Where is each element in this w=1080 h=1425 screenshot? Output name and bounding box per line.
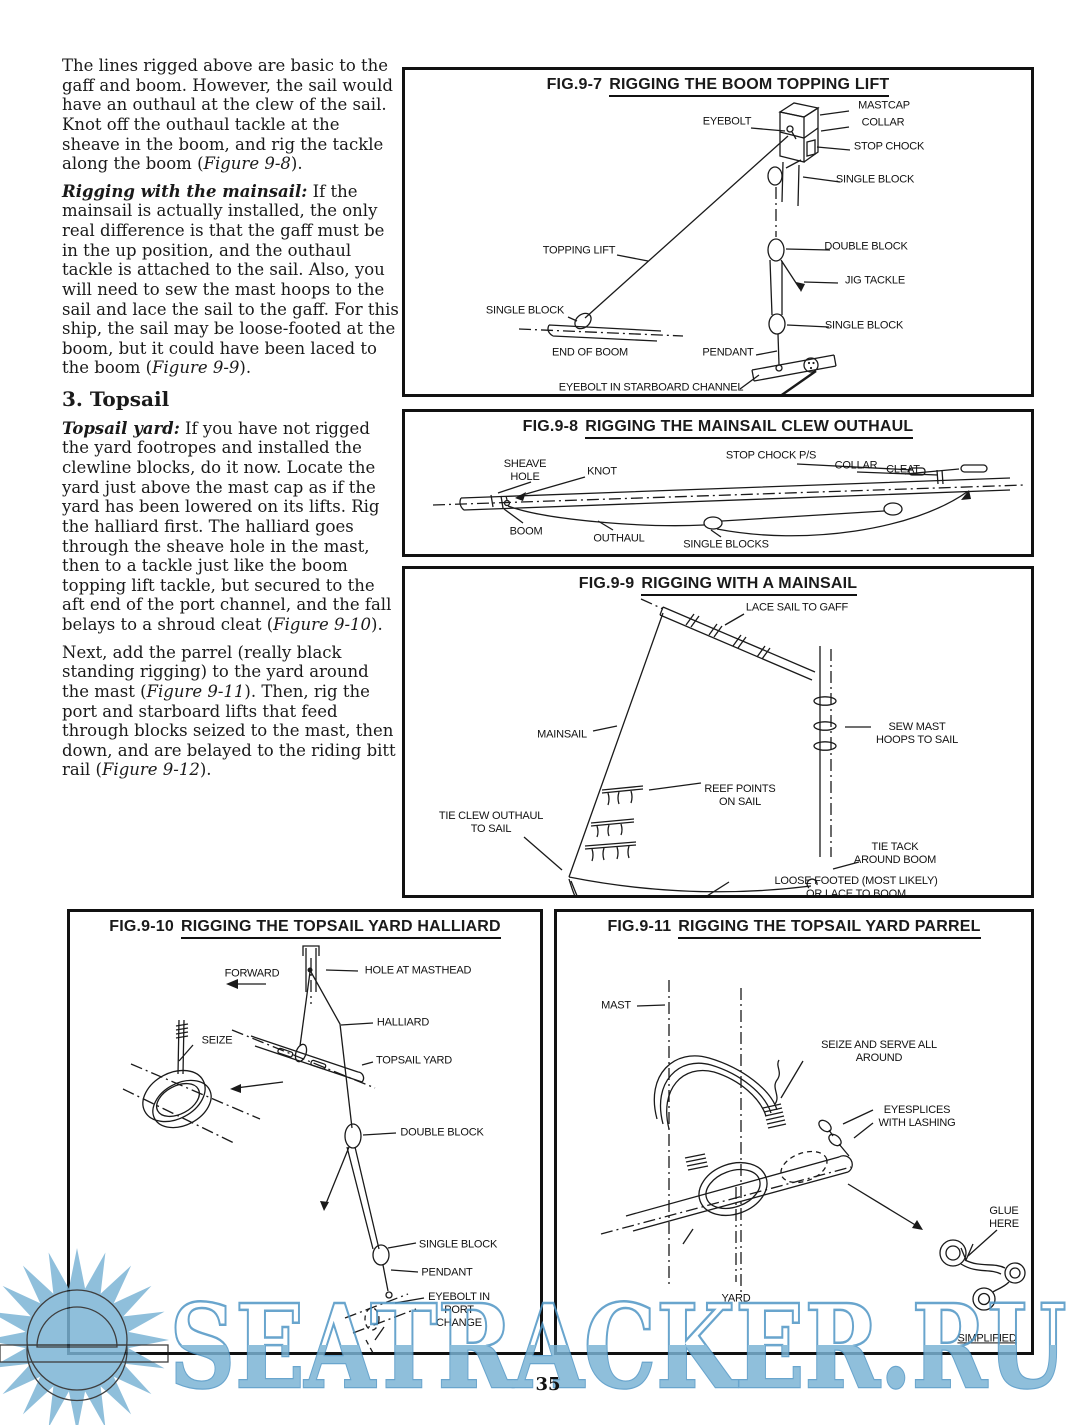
figure-9-11: FIG.9-11RIGGING THE TOPSAIL YARD PARREL	[554, 909, 1034, 1355]
figure-9-9: FIG.9-9RIGGING WITH A MAINSAIL	[402, 566, 1034, 898]
label-jig-tackle: JIG TACKLE	[845, 274, 905, 287]
paragraph-text: If you have not rigged the yard footrope…	[62, 419, 391, 634]
label-end-of-boom: END OF BOOM	[552, 346, 628, 359]
label-halliard: HALLIARD	[377, 1016, 429, 1029]
label-eyebolt-starboard-channel: EYEBOLT IN STARBOARD CHANNEL	[559, 381, 744, 394]
paragraph-lead: Topsail yard:	[62, 419, 180, 438]
label-outhaul: OUTHAUL	[593, 532, 644, 545]
paragraph: The lines rigged above are basic to the …	[62, 56, 400, 174]
label-single-blocks: SINGLE BLOCKS	[683, 538, 768, 551]
paragraph-text: ).	[239, 358, 251, 377]
label-pendant: PENDANT	[702, 346, 753, 359]
page-number: 35	[533, 1374, 563, 1395]
label-topsail-yard: TOPSAIL YARD	[376, 1054, 452, 1067]
label-eyesplices: EYESPLICES WITH LASHING	[878, 1104, 955, 1130]
label-sheave-hole: SHEAVE HOLE	[504, 458, 547, 484]
figure-9-8: FIG.9-8RIGGING THE MAINSAIL CLEW OUTHAUL	[402, 409, 1034, 557]
label-forward: FORWARD	[225, 967, 280, 980]
figure-9-7: FIG.9-7RIGGING THE BOOM TOPPING LIFT	[402, 67, 1034, 397]
label-loose-footed: LOOSE FOOTED (MOST LIKELY) OR LACE TO BO…	[769, 875, 944, 901]
label-single-block: SINGLE BLOCK	[825, 319, 903, 332]
label-single-block: SINGLE BLOCK	[836, 173, 914, 186]
label-collar: COLLAR	[862, 116, 905, 129]
section-heading: 3. Topsail	[62, 388, 400, 412]
label-seize: SEIZE	[202, 1034, 233, 1047]
label-collar: COLLAR	[835, 459, 878, 472]
label-sew-mast-hoops: SEW MAST HOOPS TO SAIL	[876, 721, 958, 747]
figure-reference: Figure 9-10	[273, 615, 371, 634]
label-hole-at-masthead: HOLE AT MASTHEAD	[365, 964, 471, 977]
label-stop-chock: STOP CHOCK	[854, 140, 924, 153]
label-tie-clew-outhaul: TIE CLEW OUTHAUL TO SAIL	[439, 810, 543, 836]
figure-reference: Figure 9-12	[102, 760, 200, 779]
paragraph: Next, add the parrel (really black stand…	[62, 643, 400, 780]
label-tie-tack: TIE TACK AROUND BOOM	[854, 841, 936, 867]
label-single-block: SINGLE BLOCK	[486, 304, 564, 317]
label-simplified: SIMPLIFIED	[957, 1332, 1016, 1345]
paragraph-text: If the mainsail is actually installed, t…	[62, 182, 399, 378]
label-mast: MAST	[601, 999, 631, 1012]
label-eyebolt-port: EYEBOLT IN PORT CHANGE	[428, 1291, 490, 1331]
figure-9-10: FIG.9-10RIGGING THE TOPSAIL YARD HALLIAR…	[67, 909, 543, 1355]
label-single-block: SINGLE BLOCK	[419, 1238, 497, 1251]
label-glue-here: GLUE HERE	[989, 1205, 1019, 1231]
label-cleat: CLEAT	[886, 463, 920, 476]
figure-reference: Figure 9-11	[147, 682, 245, 701]
label-yard: YARD	[722, 1292, 751, 1305]
text-column: The lines rigged above are basic to the …	[62, 56, 400, 788]
label-double-block: DOUBLE BLOCK	[400, 1126, 483, 1139]
figure-reference: Figure 9-9	[152, 358, 239, 377]
paragraph-text: ).	[200, 760, 212, 779]
paragraph-text: ).	[291, 154, 303, 173]
paragraph: Topsail yard: If you have not rigged the…	[62, 419, 400, 635]
fig-9-11-diagram	[557, 912, 1031, 1352]
label-stop-chock-ps: STOP CHOCK P/S	[726, 449, 816, 462]
label-pendant: PENDANT	[421, 1266, 472, 1279]
label-seize-and-serve: SEIZE AND SERVE ALL AROUND	[803, 1039, 955, 1065]
label-double-block: DOUBLE BLOCK	[824, 240, 907, 253]
paragraph: Rigging with the mainsail: If the mainsa…	[62, 182, 400, 378]
label-eyebolt: EYEBOLT	[703, 115, 752, 128]
paragraph-lead: Rigging with the mainsail:	[62, 182, 307, 201]
label-mainsail: MAINSAIL	[537, 728, 587, 741]
label-knot: KNOT	[587, 465, 617, 478]
figure-reference: Figure 9-8	[204, 154, 291, 173]
paragraph-text: ).	[371, 615, 383, 634]
fig-9-8-diagram	[405, 412, 1031, 554]
label-lace-sail-to-gaff: LACE SAIL TO GAFF	[746, 601, 848, 614]
label-mastcap: MASTCAP	[858, 99, 910, 112]
label-boom: BOOM	[510, 525, 543, 538]
document-page: The lines rigged above are basic to the …	[0, 0, 1080, 1425]
label-reef-points: REEF POINTS ON SAIL	[704, 783, 775, 809]
label-topping-lift: TOPPING LIFT	[543, 244, 616, 257]
